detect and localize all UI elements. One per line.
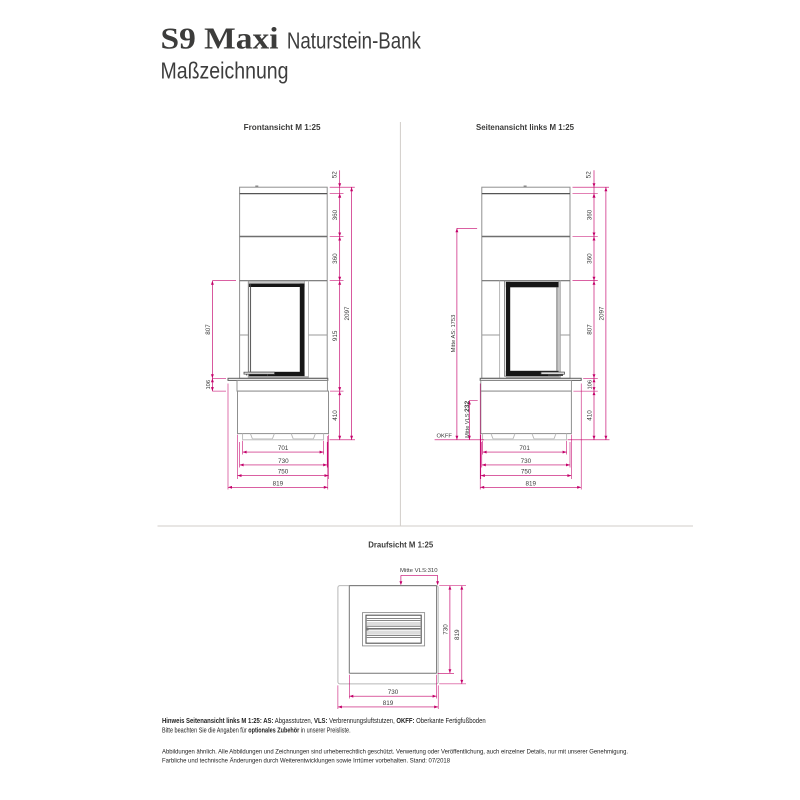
svg-text:819: 819 (383, 700, 394, 707)
svg-text:915: 915 (332, 330, 339, 341)
svg-text:106: 106 (587, 380, 593, 390)
svg-text:819: 819 (454, 629, 461, 640)
svg-text:819: 819 (525, 480, 536, 487)
svg-text:730: 730 (388, 689, 399, 696)
svg-text:Farbliche und technische Änder: Farbliche und technische Änderungen durc… (162, 756, 450, 764)
svg-text:2097: 2097 (598, 306, 605, 321)
svg-text:730: 730 (442, 624, 449, 635)
svg-text:Maßzeichnung: Maßzeichnung (161, 57, 289, 83)
svg-text:730: 730 (278, 458, 289, 465)
svg-text:106: 106 (206, 380, 212, 390)
svg-text:807: 807 (586, 324, 593, 335)
svg-text:Bitte beachten Sie die Angaben: Bitte beachten Sie die Angaben für optio… (162, 728, 351, 735)
svg-text:360: 360 (586, 209, 593, 220)
svg-text:52: 52 (331, 171, 338, 179)
svg-text:730: 730 (521, 458, 532, 465)
svg-text:410: 410 (332, 410, 339, 421)
svg-text:819: 819 (273, 480, 284, 487)
svg-text:Draufsicht M 1:25: Draufsicht M 1:25 (368, 540, 433, 549)
svg-text:OKFF: OKFF (437, 434, 453, 440)
svg-text:701: 701 (519, 445, 530, 452)
svg-text:Frontansicht M 1:25: Frontansicht M 1:25 (244, 123, 321, 132)
svg-text:Seitenansicht links M 1:25: Seitenansicht links M 1:25 (476, 123, 574, 132)
svg-text:750: 750 (521, 469, 532, 476)
svg-text:807: 807 (205, 324, 212, 335)
svg-text:Mitte VLS:232: Mitte VLS:232 (464, 400, 471, 437)
svg-text:410: 410 (586, 410, 593, 421)
svg-text:360: 360 (586, 253, 593, 264)
svg-text:750: 750 (278, 469, 289, 476)
svg-text:52: 52 (586, 171, 593, 179)
svg-text:Naturstein-Bank: Naturstein-Bank (287, 27, 421, 53)
svg-text:360: 360 (332, 253, 339, 264)
svg-text:701: 701 (278, 445, 289, 452)
svg-text:Hinweis Seitenansicht links M: Hinweis Seitenansicht links M 1:25: AS: … (162, 718, 486, 725)
svg-text:Mitte VLS:310: Mitte VLS:310 (400, 568, 438, 574)
svg-text:Abbildungen ähnlich. Alle Abbi: Abbildungen ähnlich. Alle Abbildungen un… (162, 748, 628, 755)
svg-text:360: 360 (332, 209, 339, 220)
svg-text:S9 Maxi: S9 Maxi (161, 20, 279, 55)
svg-text:Mitte AS: 1753: Mitte AS: 1753 (451, 315, 457, 353)
svg-text:2097: 2097 (344, 306, 351, 321)
